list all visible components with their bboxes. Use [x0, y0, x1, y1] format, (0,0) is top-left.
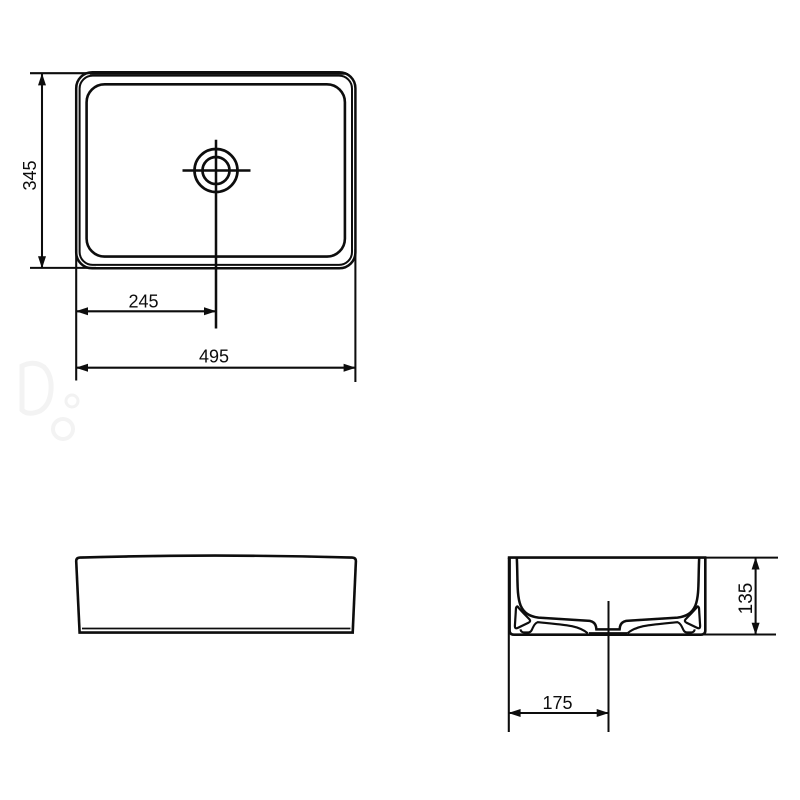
svg-text:135: 135 — [736, 583, 757, 615]
svg-text:345: 345 — [20, 160, 40, 190]
svg-text:245: 245 — [128, 291, 158, 311]
svg-text:175: 175 — [542, 693, 572, 713]
svg-text:495: 495 — [199, 346, 229, 366]
